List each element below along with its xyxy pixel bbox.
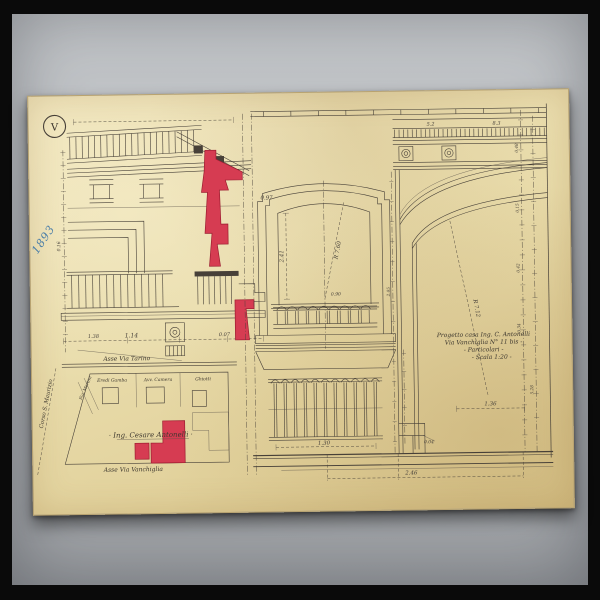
- owner-label: · Ing. Cesare Antonelli ·: [109, 431, 193, 440]
- roof-rafters: [70, 130, 194, 159]
- dimension-label: R 7.60: [333, 240, 343, 260]
- portal-elevation: [388, 104, 551, 460]
- dimension-label: 1.38: [88, 334, 99, 340]
- radius-line: [450, 220, 488, 396]
- bracket-detail: [165, 323, 184, 356]
- dimension-label: 0.97: [260, 195, 273, 201]
- street-top-label: Asse Via Tarino: [102, 355, 150, 363]
- dimension-label: 0.42: [515, 263, 520, 273]
- title-block: Progetto casa Ing. C. Antonelli Via Vanc…: [436, 331, 531, 362]
- title-line-4: - Scala 1:20 -: [472, 354, 512, 362]
- street-left-label: Corso S. Maurizio: [39, 378, 55, 429]
- section-step: [239, 284, 265, 302]
- dimension-label: 0.16: [56, 241, 62, 251]
- architectural-drawing: V 1893: [28, 89, 574, 514]
- dimension-label: 0.15: [515, 203, 520, 213]
- table-surface: V 1893: [12, 14, 588, 585]
- parcel-label: Avv. Camera: [143, 377, 173, 383]
- portal-arch: [399, 163, 548, 225]
- window-elevation: [253, 180, 395, 350]
- dimension-label: 1.14: [125, 332, 139, 339]
- dimension-label: 0.90: [331, 291, 341, 297]
- portal-jamb: [395, 170, 403, 454]
- section-highlight-red: [201, 150, 255, 341]
- owner-parcel-red: [151, 421, 186, 463]
- archive-stamp: V: [43, 115, 65, 137]
- dimension-label: 5.2: [427, 122, 435, 128]
- dimension-label: 2.05: [386, 287, 391, 298]
- dentil-band: [392, 118, 546, 141]
- parcel-label: Ghiotti: [195, 376, 211, 382]
- drawing-sheet: V 1893: [27, 88, 575, 516]
- cornice-section: [66, 117, 252, 275]
- photo-frame: V 1893: [0, 0, 600, 600]
- dimension-label: 1.36: [484, 401, 497, 407]
- boundary-note: Sig. Martini: [78, 375, 93, 401]
- parcel-label: Eredi Gamba: [96, 377, 127, 383]
- archive-note: 1893: [29, 223, 58, 257]
- street-bottom-label: Asse Via Vanchiglia: [103, 466, 164, 474]
- grille-bars: [268, 378, 383, 441]
- rosette-band: [393, 143, 547, 170]
- dimension-label: 0.04: [424, 439, 434, 445]
- dimension-label: 8.3: [493, 121, 501, 127]
- site-plan: Asse Via Tarino Corso S. Maurizio Sig. M…: [36, 354, 239, 477]
- ground-lines: [253, 451, 553, 481]
- dimension-label: 0.34: [516, 323, 521, 333]
- wall-reveal-steps: [68, 221, 145, 274]
- title-line-2: Via Vanchiglia N° 11 bis -: [445, 338, 523, 346]
- title-line-3: - Particolari -: [464, 346, 504, 354]
- dimension-label: 0.07: [219, 332, 231, 338]
- dimension-label: 0.48: [514, 143, 519, 153]
- dimension-label: 2.46: [404, 470, 418, 476]
- dimension-label: 1.30: [318, 441, 331, 447]
- top-dimension-rule: [250, 108, 546, 117]
- grille-detail: [256, 344, 408, 451]
- stamp-numeral: V: [50, 122, 59, 133]
- dimension-label: R 7.12: [471, 298, 481, 318]
- dimension-label: 5.28: [529, 385, 534, 395]
- dimension-label: 2.41: [279, 250, 285, 263]
- console-bracket: [89, 179, 163, 203]
